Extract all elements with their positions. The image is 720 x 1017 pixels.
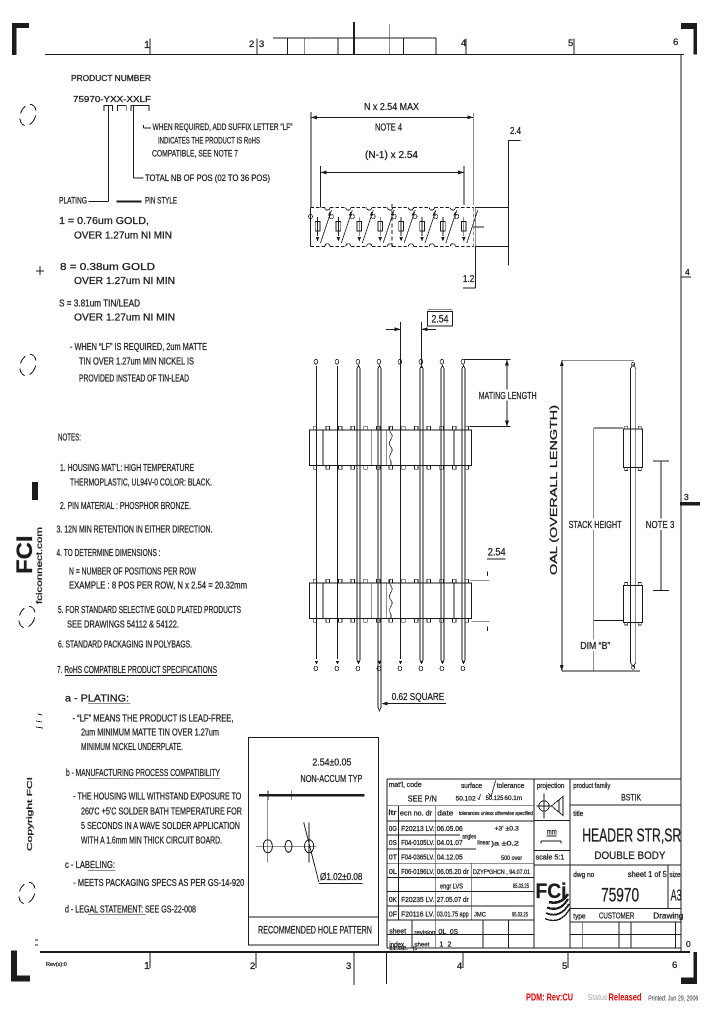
svg-text:5 SECONDS IN A WAVE SOLDER APP: 5 SECONDS IN A WAVE SOLDER APPLICATION [81, 821, 240, 832]
svg-text:TOTAL NB OF POS (02 TO 36 POS): TOTAL NB OF POS (02 TO 36 POS) [145, 173, 270, 184]
svg-text:N x 2.54 MAX: N x 2.54 MAX [364, 102, 419, 113]
svg-text:260'C +5'C SOLDER BATH TEMPERA: 260'C +5'C SOLDER BATH TEMPERATURE FOR [81, 807, 242, 818]
svg-text:2.54±0.05: 2.54±0.05 [312, 758, 351, 769]
svg-text:4: 4 [457, 961, 462, 972]
svg-text:0L: 0L [438, 929, 446, 936]
svg-text:- MEETS PACKAGING SPECS AS PER: - MEETS PACKAGING SPECS AS PER GS-14-920 [73, 878, 244, 889]
svg-text:NOTES:: NOTES: [58, 433, 81, 444]
svg-text:0S: 0S [389, 838, 397, 847]
svg-text:ltr: ltr [388, 810, 397, 817]
svg-text:linear: linear [477, 840, 490, 847]
svg-text:7. RoHS COMPATIBLE PRODUCT SPE: 7. RoHS COMPATIBLE PRODUCT SPECIFICATION… [57, 665, 217, 676]
svg-text:MINIMUM NICKEL UNDERPLATE.: MINIMUM NICKEL UNDERPLATE. [81, 742, 183, 753]
svg-text:6. STANDARD PACKAGING IN POLYB: 6. STANDARD PACKAGING IN POLYBAGS. [58, 640, 192, 651]
svg-text:BSTIK: BSTIK [621, 793, 642, 803]
svg-text:3: 3 [684, 492, 689, 502]
svg-text:DZYF*GHCN , 94.07.01: DZYF*GHCN , 94.07.01 [473, 869, 530, 876]
svg-text:HEADER STR,SR: HEADER STR,SR [582, 825, 681, 846]
svg-text:06.05.06: 06.05.06 [437, 824, 463, 833]
svg-text:date: date [437, 811, 453, 818]
svg-text:04.12.05: 04.12.05 [437, 853, 463, 862]
svg-text:revision: revision [414, 930, 435, 937]
svg-text:3: 3 [259, 39, 264, 50]
svg-text:6: 6 [673, 37, 678, 48]
svg-text:tolerances unless otherwise sp: tolerances unless otherwise specified [459, 811, 533, 817]
svg-text:500 over: 500 over [501, 855, 523, 862]
svg-text:1: 1 [439, 942, 443, 949]
svg-text:1 = 0.76um GOLD,: 1 = 0.76um GOLD, [59, 216, 149, 227]
svg-text:04.01.07: 04.01.07 [437, 838, 463, 847]
svg-text:sheet: sheet [389, 929, 406, 936]
svg-text:NOTE 3: NOTE 3 [646, 520, 675, 531]
svg-text:0G: 0G [389, 824, 397, 833]
svg-text:0: 0 [686, 939, 691, 949]
svg-text:50.102: 50.102 [456, 796, 477, 803]
svg-text:A3: A3 [671, 888, 682, 905]
svg-text:OVER 1.27um NI MIN: OVER 1.27um NI MIN [74, 276, 175, 287]
svg-text:85.03.25: 85.03.25 [513, 883, 529, 890]
svg-text:DIM “B”: DIM “B” [580, 641, 611, 652]
svg-text:- WHEN “LF” IS REQUIRED, 2um M: - WHEN “LF” IS REQUIRED, 2um MATTE [70, 342, 207, 353]
svg-text:JMC: JMC [474, 912, 486, 919]
svg-text:(N-1) x 2.54: (N-1) x 2.54 [365, 150, 418, 161]
svg-text:PRODUCT NUMBER: PRODUCT NUMBER [71, 73, 151, 83]
svg-text:b - MANUFACTURING PROCESS COMP: b - MANUFACTURING PROCESS COMPATIBILITY [66, 768, 220, 779]
svg-text:8 = 0.38um GOLD: 8 = 0.38um GOLD [60, 262, 155, 273]
svg-text:11.02.: 11.02. [389, 946, 408, 952]
svg-text:0F: 0F [389, 910, 398, 919]
svg-text:6: 6 [672, 960, 677, 971]
svg-text:EXAMPLE : 8 POS PER ROW, N x 2: EXAMPLE : 8 POS PER ROW, N x 2.54 = 20.3… [69, 581, 247, 592]
svg-text:OVER 1.27um NI MIN: OVER 1.27um NI MIN [74, 313, 175, 324]
svg-text:2. PIN MATERIAL : PHOSPHOR BRO: 2. PIN MATERIAL : PHOSPHOR BRONZE. [60, 501, 191, 512]
svg-text:2.4: 2.4 [510, 126, 521, 137]
svg-text:1.2: 1.2 [463, 274, 475, 285]
svg-text:F20213 LV.: F20213 LV. [401, 824, 434, 833]
svg-text:0L: 0L [389, 867, 397, 876]
svg-text:WITH A 1.6mm MIN THICK CIRCUIT: WITH A 1.6mm MIN THICK CIRCUIT BOARD. [81, 836, 222, 847]
svg-text:title: title [573, 811, 583, 818]
svg-text:27.05.07 dr: 27.05.07 dr [437, 895, 470, 904]
svg-text:mat'l, code: mat'l, code [389, 782, 422, 789]
svg-text:F06-0196LV.: F06-0196LV. [401, 867, 434, 876]
svg-text:2um MINIMUM MATTE TIN OVER 1.2: 2um MINIMUM MATTE TIN OVER 1.27um [81, 728, 219, 739]
svg-text:- THE HOUSING WILL WITHSTAND E: - THE HOUSING WILL WITHSTAND EXPOSURE TO [73, 792, 241, 803]
svg-text:COMPATIBLE, SEE NOTE 7: COMPATIBLE, SEE NOTE 7 [152, 149, 238, 160]
svg-text:SEE P/N: SEE P/N [408, 794, 437, 804]
svg-text:3. 12N MIN RETENTION IN EITHER: 3. 12N MIN RETENTION IN EITHER DIRECTION… [57, 525, 213, 536]
svg-text:PDM: Rev:CU: PDM: Rev:CU [526, 993, 573, 1004]
svg-text:CUSTOMER: CUSTOMER [599, 911, 635, 921]
svg-text:Drawing: Drawing [653, 911, 683, 921]
svg-text:4: 4 [461, 38, 466, 49]
svg-text:4. TO DETERMINE DIMENSIONS :: 4. TO DETERMINE DIMENSIONS : [57, 548, 161, 559]
svg-text:projection: projection [537, 783, 565, 790]
svg-text:NON-ACCUM TYP: NON-ACCUM TYP [300, 774, 362, 785]
svg-text:0T: 0T [389, 853, 398, 862]
svg-text:06.05.20 dr: 06.05.20 dr [437, 867, 470, 876]
svg-text:mm: mm [547, 828, 557, 837]
svg-text:2.54: 2.54 [488, 547, 506, 559]
svg-text:4: 4 [685, 267, 690, 277]
svg-text:50.125: 50.125 [486, 795, 504, 802]
svg-text:75970: 75970 [601, 886, 639, 907]
svg-text:Copyright FCI: Copyright FCI [25, 777, 34, 851]
svg-text:|5: |5 [413, 946, 417, 952]
svg-text:)a ±0.2: )a ±0.2 [491, 841, 519, 848]
svg-text:PROVIDED INSTEAD OF TIN-LEAD: PROVIDED INSTEAD OF TIN-LEAD [79, 374, 189, 385]
svg-text:tolerance: tolerance [497, 783, 525, 790]
svg-text:5: 5 [568, 38, 573, 49]
svg-text:0K: 0K [389, 895, 397, 904]
svg-text:PLATING: PLATING [59, 196, 87, 207]
svg-text:75970-YXX-XXLF: 75970-YXX-XXLF [73, 94, 151, 104]
svg-text:5: 5 [562, 961, 567, 972]
svg-text:+3' ±0.3: +3' ±0.3 [494, 826, 519, 833]
svg-text:0.62 SQUARE: 0.62 SQUARE [392, 692, 445, 703]
svg-text:RECOMMENDED HOLE PATTERN: RECOMMENDED HOLE PATTERN [258, 925, 372, 937]
svg-text:PIN STYLE: PIN STYLE [145, 196, 177, 207]
svg-text:Rev(s):0: Rev(s):0 [46, 962, 67, 968]
svg-text:Status: Status [588, 993, 608, 1002]
svg-text:c - LABELING:: c - LABELING: [65, 860, 115, 871]
svg-text:surface: surface [461, 783, 482, 790]
svg-text:5. FOR STANDARD SELECTIVE GOLD: 5. FOR STANDARD SELECTIVE GOLD PLATED PR… [58, 605, 241, 616]
svg-text:95.03.25: 95.03.25 [512, 912, 528, 919]
svg-text:SEE DRAWINGS 54112 & 54122.: SEE DRAWINGS 54112 & 54122. [67, 620, 179, 631]
svg-text:size: size [670, 872, 681, 879]
svg-text:F04-0105LV.: F04-0105LV. [401, 838, 434, 847]
svg-text:d - LEGAL STATEMENT: SEE GS-22: d - LEGAL STATEMENT: SEE GS-22-008 [65, 905, 196, 916]
svg-text:NOTE 4: NOTE 4 [375, 123, 402, 134]
svg-text:N = NUMBER OF POSITIONS PER RO: N = NUMBER OF POSITIONS PER ROW [69, 567, 196, 578]
svg-text:STACK HEIGHT: STACK HEIGHT [569, 520, 622, 531]
svg-text:THERMOPLASTIC, UL94V-0 COLOR:: THERMOPLASTIC, UL94V-0 COLOR: BLACK. [70, 478, 212, 489]
svg-text:60.1m: 60.1m [504, 795, 522, 802]
svg-text:F04-0365LV.: F04-0365LV. [401, 853, 434, 862]
svg-text:DOUBLE BODY: DOUBLE BODY [594, 850, 665, 862]
svg-text:MATING LENGTH: MATING LENGTH [479, 391, 537, 402]
svg-text:angles: angles [462, 834, 476, 841]
svg-text:2.54: 2.54 [432, 314, 449, 326]
svg-text:Printed: Jun 29, 2006: Printed: Jun 29, 2006 [648, 994, 698, 1003]
svg-text:WHEN REQUIRED, ADD SUFFIX LETT: WHEN REQUIRED, ADD SUFFIX LETTER “LF” [153, 122, 293, 133]
svg-text:1: 1 [144, 960, 150, 972]
svg-text:2: 2 [448, 942, 452, 949]
svg-text:0S: 0S [450, 929, 458, 936]
svg-text:1. HOUSING MAT'L: HIGH TEMPERA: 1. HOUSING MAT'L: HIGH TEMPERATURE [60, 463, 194, 474]
svg-text:TIN OVER 1.27um MIN NICKEL IS: TIN OVER 1.27um MIN NICKEL IS [79, 357, 194, 368]
svg-text:Ø1.02±0.08: Ø1.02±0.08 [320, 872, 363, 883]
svg-text:INDICATES THE PRODUCT IS RoHS: INDICATES THE PRODUCT IS RoHS [158, 136, 260, 147]
svg-text:2: 2 [250, 961, 255, 972]
svg-text:dwg no: dwg no [573, 872, 594, 879]
svg-text:a - PLATING:: a - PLATING: [65, 694, 129, 705]
svg-text:F20235 LV.: F20235 LV. [401, 895, 434, 904]
svg-text:- “LF” MEANS THE PRODUCT IS LE: - “LF” MEANS THE PRODUCT IS LEAD-FREE, [73, 714, 234, 725]
svg-text:product family: product family [573, 783, 610, 790]
svg-text:OAL (OVERALL LENGTH): OAL (OVERALL LENGTH) [549, 405, 560, 575]
svg-text:S = 3.81um TIN/LEAD: S = 3.81um TIN/LEAD [59, 299, 140, 310]
svg-text:2: 2 [249, 39, 254, 50]
svg-text:F20116 LV.: F20116 LV. [401, 910, 434, 919]
svg-text:scale 5:1: scale 5:1 [536, 855, 565, 862]
svg-text:Released: Released [609, 993, 642, 1004]
svg-text:engr LVS: engr LVS [440, 884, 463, 891]
svg-text:OVER 1.27um NI MIN: OVER 1.27um NI MIN [74, 231, 172, 242]
svg-text:type: type [573, 914, 585, 921]
svg-text:fciconnect.com: fciconnect.com [34, 527, 44, 604]
svg-text:ecn no. dr: ecn no. dr [400, 811, 433, 818]
svg-text:03.01.75 app: 03.01.75 app [437, 910, 469, 919]
svg-text:3: 3 [346, 961, 351, 972]
svg-text:1: 1 [144, 39, 150, 51]
svg-text:sheet 1 of 5: sheet 1 of 5 [628, 870, 668, 879]
